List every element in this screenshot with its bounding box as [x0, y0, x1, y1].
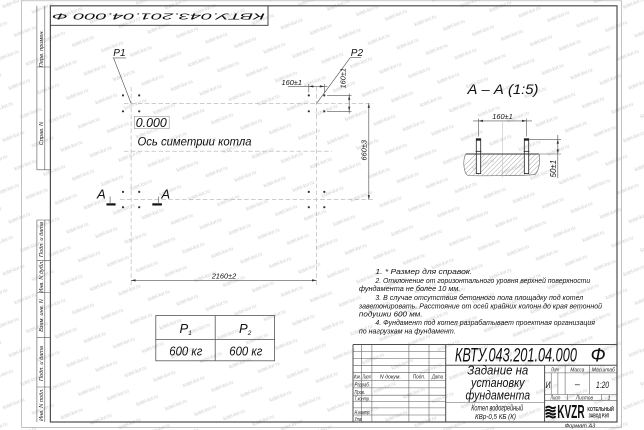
svg-text:Р: Р: [180, 321, 189, 336]
svg-text:Ось симетрии котла: Ось симетрии котла: [138, 137, 252, 149]
svg-text:KVZR: KVZR: [557, 402, 584, 422]
svg-text:А: А: [96, 187, 106, 202]
svg-text:N докум.: N докум.: [380, 375, 401, 381]
svg-text:КОТЕЛЬНЫЙ: КОТЕЛЬНЫЙ: [587, 405, 614, 413]
svg-text:Инв. N подл.: Инв. N подл.: [39, 388, 45, 421]
svg-text:Изм.: Изм.: [354, 375, 361, 381]
svg-text:660±3: 660±3: [359, 139, 368, 160]
svg-text:Подп. и дата: Подп. и дата: [39, 222, 45, 257]
svg-text:А: А: [160, 187, 170, 202]
svg-text:Лист: Лист: [550, 395, 561, 401]
svg-text:фундамента не более 10 мм.: фундамента не более 10 мм.: [359, 284, 461, 293]
svg-text:50±1: 50±1: [549, 160, 558, 178]
svg-text:160±1: 160±1: [338, 68, 347, 89]
svg-text:КВТУ.043.201.04.000 Ф: КВТУ.043.201.04.000 Ф: [51, 12, 265, 22]
svg-text:600 кг: 600 кг: [169, 344, 202, 358]
svg-text:Утв.: Утв.: [354, 417, 363, 423]
svg-text:Р: Р: [239, 321, 248, 336]
svg-text:1: 1: [188, 330, 192, 337]
svg-text:Листов: Листов: [575, 395, 593, 401]
svg-text:Дата: Дата: [431, 375, 443, 381]
svg-text:1: 1: [607, 395, 610, 401]
svg-text:Лист: Лист: [362, 375, 371, 381]
svg-text:1:20: 1:20: [596, 380, 609, 390]
svg-text:160±1: 160±1: [282, 78, 303, 87]
svg-text:Т.контр.: Т.контр.: [355, 397, 371, 403]
svg-text:Масштаб: Масштаб: [592, 367, 616, 373]
svg-text:Разраб.: Разраб.: [355, 383, 371, 389]
svg-text:600 кг: 600 кг: [229, 344, 262, 358]
svg-text:Ф: Ф: [590, 346, 605, 367]
svg-text:0.000: 0.000: [136, 116, 167, 130]
svg-text:Подп. и дата: Подп. и дата: [39, 346, 45, 381]
svg-text:по нагрузкам на фундамент.: по нагрузкам на фундамент.: [359, 326, 456, 335]
svg-text:Формат А3: Формат А3: [565, 424, 596, 430]
svg-text:ЗАВОД РЭП: ЗАВОД РЭП: [589, 414, 610, 420]
svg-text:2160±2: 2160±2: [211, 271, 237, 280]
svg-text:160±1: 160±1: [492, 112, 513, 121]
svg-text:Взам. инв. N: Взам. инв. N: [39, 298, 45, 332]
svg-text:–: –: [574, 379, 581, 389]
svg-text:Перв. примен.: Перв. примен.: [39, 30, 45, 67]
svg-text:Лит: Лит: [550, 367, 559, 373]
svg-text:фундамента: фундамента: [466, 389, 531, 403]
svg-text:Н.контр.: Н.контр.: [355, 410, 371, 416]
svg-text:Масса: Масса: [570, 367, 584, 373]
svg-text:P1: P1: [113, 48, 125, 59]
svg-text:2: 2: [247, 330, 252, 337]
svg-text:А – А (1:5): А – А (1:5): [466, 82, 538, 97]
svg-text:Пров.: Пров.: [355, 390, 366, 396]
svg-text:1. * Размер для справок.: 1. * Размер для справок.: [375, 267, 472, 276]
svg-text:КВр-0,5 КБ (К): КВр-0,5 КБ (К): [475, 412, 516, 421]
svg-text:Подп.: Подп.: [413, 375, 426, 381]
svg-text:Инв. N дубл.: Инв. N дубл.: [39, 260, 45, 292]
svg-text:Справ. N: Справ. N: [39, 121, 45, 145]
svg-text:И: И: [546, 380, 551, 391]
